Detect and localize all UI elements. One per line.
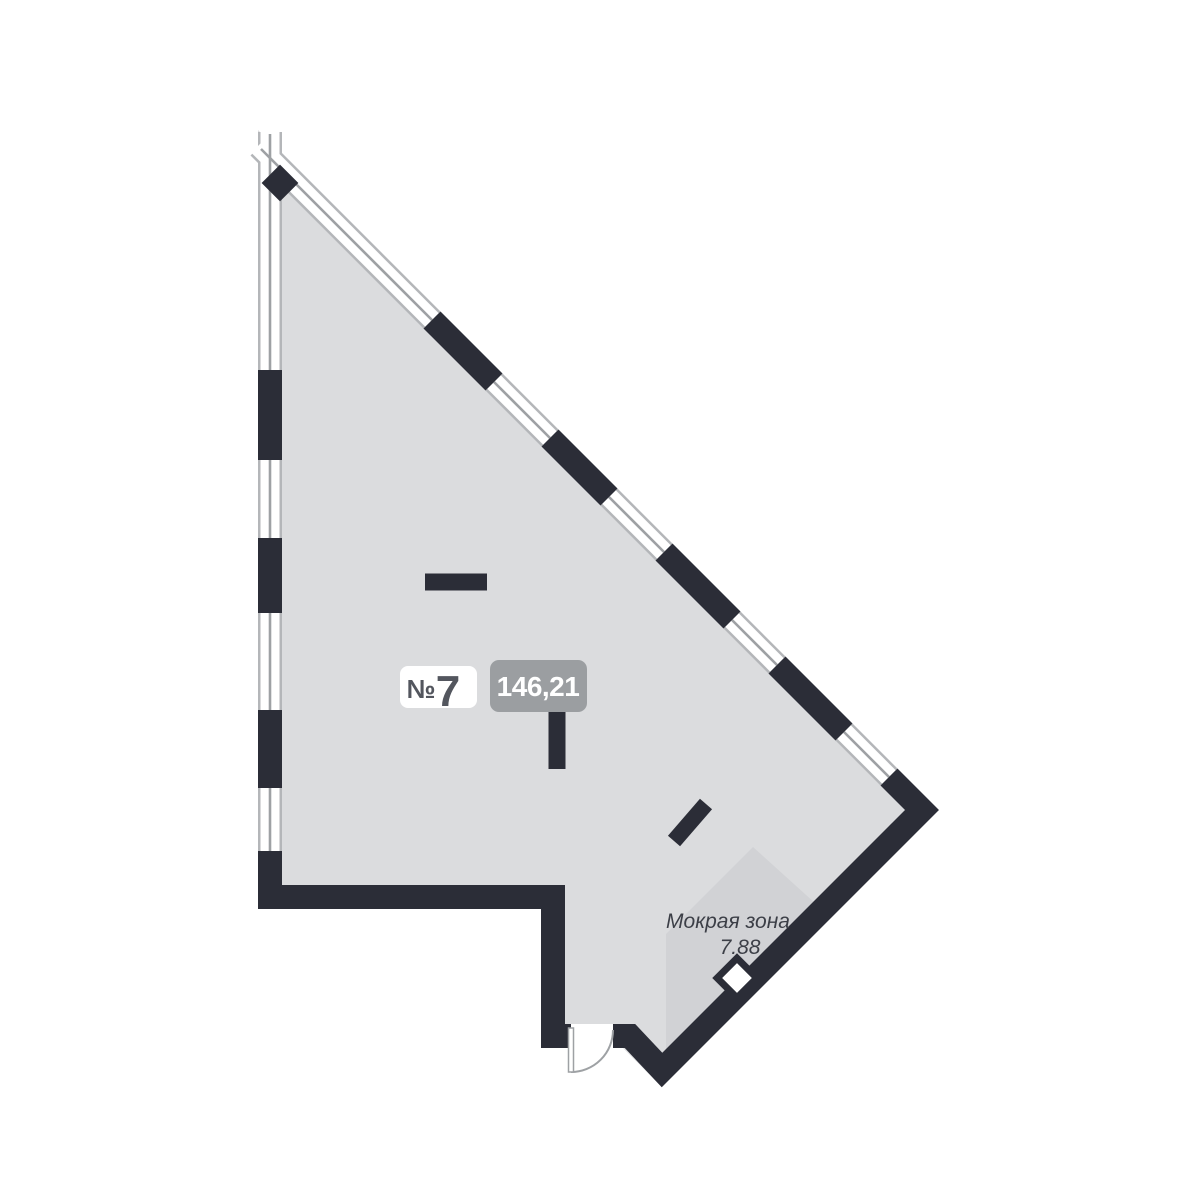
door-swing-arc <box>571 1030 613 1072</box>
door-leaf <box>569 1028 574 1072</box>
unit-number-value: 7 <box>436 667 460 716</box>
unit-area-value: 146,21 <box>497 671 580 702</box>
entrance-door[interactable] <box>569 1028 614 1072</box>
unit-area-badge[interactable]: 146,21 <box>490 660 587 712</box>
wet-zone-label: Мокрая зона <box>666 910 790 933</box>
unit-number-prefix: № <box>407 674 436 704</box>
unit-floor[interactable] <box>258 130 938 1087</box>
wet-zone-area: 7.88 <box>720 936 761 959</box>
floor-plan-svg: № 7 146,21 Мокрая зона 7.88 <box>0 0 1200 1200</box>
floor-plan-page: № 7 146,21 Мокрая зона 7.88 <box>0 0 1200 1200</box>
